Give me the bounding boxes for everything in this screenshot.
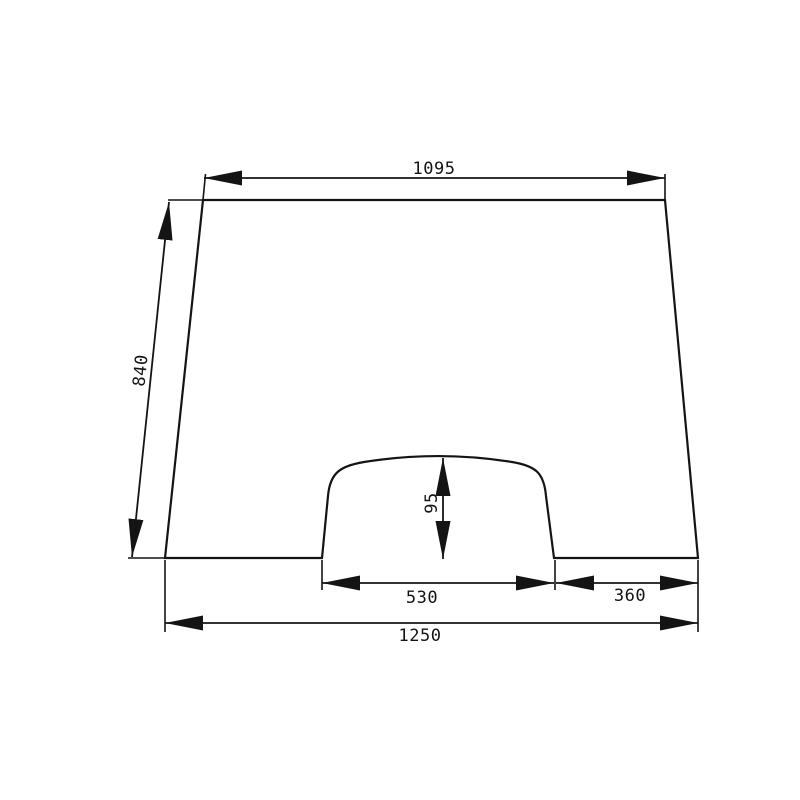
dimension-label-top-width: 1095 [413,159,456,179]
technical-drawing-canvas: 1095 840 95 530 360 1250 [0,0,800,800]
dimension-label-bottom-right-segment: 360 [614,586,646,606]
dimension-cutout-width: 530 [322,583,554,608]
dimension-bottom-width: 1250 [165,623,698,646]
dimension-label-bottom-width: 1250 [399,626,442,646]
drawing-page: 1095 840 95 530 360 1250 [0,0,800,800]
dimension-side-length: 840 [129,202,169,557]
dimension-top-width: 1095 [204,159,665,179]
dimension-label-cutout-height: 95 [422,492,442,513]
dimension-label-side-length: 840 [129,353,152,387]
dimension-label-cutout-width: 530 [406,588,438,608]
extension-lines [128,174,698,632]
dimension-bottom-right-segment: 360 [556,583,698,606]
dimension-cutout-height: 95 [422,458,443,559]
